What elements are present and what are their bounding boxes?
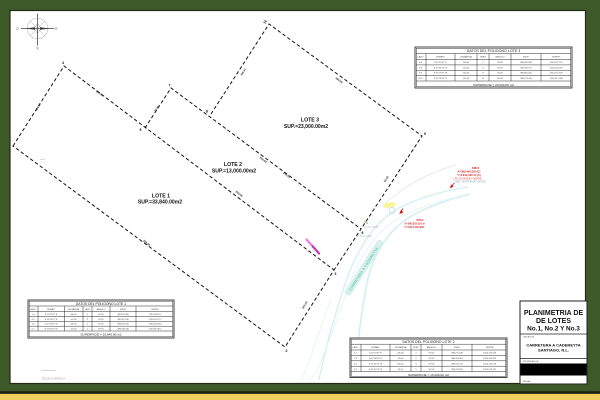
svg-text:PROPIEDAD DE:: PROPIEDAD DE: (523, 360, 539, 363)
svg-text:141.00: 141.00 (70, 319, 77, 321)
svg-text:LADO: LADO (30, 308, 36, 311)
svg-text:N 52°19'47" W: N 52°19'47" W (434, 73, 448, 75)
svg-text:2,814,298.787: 2,814,298.787 (483, 369, 497, 371)
svg-text:388,210.742: 388,210.742 (451, 363, 463, 365)
svg-text:90°00': 90°00' (98, 324, 104, 326)
svg-text:260.00: 260.00 (397, 353, 404, 355)
svg-text:389,049.727: 389,049.727 (520, 67, 532, 69)
svg-text:N 37°40'13" E: N 37°40'13" E (434, 78, 448, 80)
svg-text:X=389,456.230 (C): X=389,456.230 (C) (458, 169, 481, 173)
svg-text:50.00: 50.00 (398, 358, 404, 360)
svg-text:N 37°40'13" W: N 37°40'13" W (44, 329, 57, 331)
svg-text:8: 8 (206, 110, 208, 114)
svg-text:PLANIMETRIA DE: PLANIMETRIA DE (524, 310, 584, 317)
svg-text:RUMBO: RUMBO (47, 309, 55, 311)
svg-text:DE LOTES: DE LOTES (536, 318, 571, 325)
svg-text:ESTE: ESTE (523, 56, 529, 58)
svg-text:388,138.248: 388,138.248 (117, 329, 129, 331)
svg-text:DISTANCIA: DISTANCIA (395, 346, 407, 349)
svg-text:Y=2,814,120.300: Y=2,814,120.300 (404, 225, 424, 229)
svg-text:388,245.820: 388,245.820 (451, 369, 463, 371)
svg-text:S 52°19'47" E: S 52°19'47" E (369, 353, 382, 355)
svg-text:N 44°56'07" E: N 44°56'07" E (45, 319, 58, 321)
svg-text:2,814,163.203: 2,814,163.203 (483, 363, 497, 365)
svg-text:90°00': 90°00' (497, 73, 503, 75)
svg-text:SUPERFICIE = 33,840.00 m2: SUPERFICIE = 33,840.00 m2 (80, 333, 121, 337)
svg-text:VERT.: VERT. (413, 347, 420, 349)
svg-text:90°00': 90°00' (429, 363, 435, 365)
svg-text:2,814,317.048: 2,814,317.048 (549, 78, 563, 80)
svg-text:S 52°19'47" E: S 52°19'47" E (45, 314, 58, 316)
svg-text:141.00: 141.00 (70, 329, 77, 331)
svg-text:388,341.064: 388,341.064 (451, 358, 463, 360)
svg-text:ANGULO: ANGULO (97, 308, 106, 311)
svg-text:DATOS DEL POLIGONO LOTE 2: DATOS DEL POLIGONO LOTE 2 (402, 340, 454, 344)
svg-text:S 52°19'47" E: S 52°19'47" E (434, 62, 447, 64)
svg-text:240.00: 240.00 (70, 324, 77, 326)
svg-text:DATOS DEL POLIGONO LOTE 3: DATOS DEL POLIGONO LOTE 3 (467, 49, 520, 53)
svg-text:S 37°40'13" W: S 37°40'13" W (434, 67, 447, 69)
svg-text:7: 7 (169, 84, 171, 88)
svg-text:4: 4 (62, 61, 64, 65)
svg-text:2,814,209.450: 2,814,209.450 (483, 358, 497, 360)
svg-text:2: 2 (286, 349, 288, 353)
svg-text:LOTE 3: LOTE 3 (301, 118, 319, 124)
svg-text:arbol: arbol (40, 158, 45, 161)
svg-text:2,814,248.177: 2,814,248.177 (149, 314, 163, 316)
svg-text:LONG. 100°07'45.80" OESTE: LONG. 100°07'45.80" OESTE (453, 181, 486, 184)
svg-text:N 37°40'13" E: N 37°40'13" E (369, 358, 383, 360)
svg-text:2,814,227.247: 2,814,227.247 (549, 62, 563, 64)
svg-text:90°00': 90°00' (497, 62, 503, 64)
svg-text:90°00': 90°00' (497, 67, 503, 69)
svg-text:ANGULO: ANGULO (495, 55, 505, 58)
svg-text:9: 9 (424, 132, 426, 136)
svg-text:388,936.968: 388,936.968 (520, 62, 532, 64)
svg-text:388,457.188: 388,457.188 (117, 319, 129, 321)
svg-text:90°00': 90°00' (429, 353, 435, 355)
svg-text:SUP.=13,000.00m2: SUP.=13,000.00m2 (212, 168, 256, 174)
svg-text:388,437.988: 388,437.988 (117, 314, 129, 316)
svg-text:E: E (55, 27, 57, 31)
svg-text:90°00': 90°00' (429, 369, 435, 371)
svg-text:RUMBO: RUMBO (371, 347, 379, 349)
svg-text:VERT.: VERT. (480, 56, 487, 58)
svg-text:Y=2,814,195.11 (C): Y=2,814,195.11 (C) (457, 173, 480, 177)
svg-text:200.00: 200.00 (463, 62, 470, 64)
svg-text:2,814,062.029: 2,814,062.029 (549, 67, 563, 69)
svg-text:X=389,052.110 m: X=389,052.110 m (404, 222, 425, 226)
svg-text:388,281.188: 388,281.188 (117, 324, 129, 326)
svg-text:S: S (36, 47, 38, 51)
svg-text:SUP.=33,840.00m2: SUP.=33,840.00m2 (138, 200, 182, 206)
svg-text:DATOS DEL POLIGONO LOTE 1: DATOS DEL POLIGONO LOTE 1 (76, 302, 127, 306)
svg-text:KM14: KM14 (417, 218, 424, 222)
svg-text:acceso a predio: acceso a predio (364, 225, 380, 228)
svg-text:388,891.005: 388,891.005 (520, 73, 532, 75)
svg-text:115.00: 115.00 (463, 78, 470, 80)
svg-text:5: 5 (140, 128, 142, 132)
svg-text:SUP.=23,000.00m2: SUP.=23,000.00m2 (284, 124, 328, 130)
svg-text:388,778.246: 388,778.246 (520, 78, 532, 80)
svg-text:90°00': 90°00' (497, 78, 503, 80)
svg-text:SUPERFICIE = 23,000.00 m2: SUPERFICIE = 23,000.00 m2 (473, 83, 514, 87)
svg-text:90°00': 90°00' (98, 319, 104, 321)
svg-text:NORTE: NORTE (486, 347, 494, 349)
svg-text:FECHA:: FECHA: (523, 380, 531, 383)
svg-text:LADO: LADO (353, 346, 359, 349)
svg-text:3: 3 (335, 272, 337, 276)
svg-text:90°00': 90°00' (429, 358, 435, 360)
svg-text:DISTANCIA: DISTANCIA (460, 55, 472, 58)
svg-text:No.1, No.2 Y No.3: No.1, No.2 Y No.3 (527, 326, 580, 333)
svg-text:260.00: 260.00 (397, 363, 404, 365)
svg-text:VERT.: VERT. (85, 309, 91, 311)
svg-text:KM15: KM15 (472, 166, 480, 170)
svg-text:2,814,151.830: 2,814,151.830 (549, 73, 563, 75)
svg-text:NORTE: NORTE (151, 309, 159, 311)
svg-text:RUMBO: RUMBO (436, 56, 444, 58)
svg-text:NORTE: NORTE (552, 56, 560, 58)
svg-text:115.00: 115.00 (463, 67, 470, 69)
svg-text:SUPERFICIE = 13,000.00 m2: SUPERFICIE = 13,000.00 m2 (408, 373, 449, 377)
svg-text:S 52°19'47" W: S 52°19'47" W (369, 363, 382, 365)
svg-text:ESCALA GRAFICA: ESCALA GRAFICA (42, 377, 65, 381)
svg-text:N 37°40'13" W: N 37°40'13" W (369, 369, 383, 371)
svg-text:240.00: 240.00 (70, 314, 77, 316)
svg-text:200.00: 200.00 (463, 73, 470, 75)
svg-text:2,814,142.177: 2,814,142.177 (149, 319, 163, 321)
svg-text:90°00': 90°00' (98, 314, 104, 316)
svg-text:SANTIAGO, N.L.: SANTIAGO, N.L. (538, 347, 569, 352)
svg-text:50.00: 50.00 (398, 369, 404, 371)
svg-text:LOTE 2: LOTE 2 (224, 162, 242, 168)
svg-text:2,814,919.810: 2,814,919.810 (149, 329, 163, 331)
svg-text:90°00': 90°00' (98, 329, 104, 331)
svg-text:DISTANCIA: DISTANCIA (68, 308, 80, 311)
svg-text:UBICACION:: UBICACION: (523, 336, 535, 339)
svg-text:ESTE: ESTE (120, 309, 126, 311)
svg-text:2,814,035.280: 2,814,035.280 (149, 324, 163, 326)
svg-text:ANGULO: ANGULO (427, 346, 437, 349)
svg-text:2,814,225.690: 2,814,225.690 (483, 353, 497, 355)
svg-text:388,715.646: 388,715.646 (451, 353, 463, 355)
svg-text:S 52°19'47" W: S 52°19'47" W (45, 324, 58, 326)
svg-text:LADO: LADO (418, 55, 424, 58)
svg-text:ESTE: ESTE (454, 347, 460, 349)
svg-text:ancho de camino: ancho de camino (357, 235, 374, 237)
